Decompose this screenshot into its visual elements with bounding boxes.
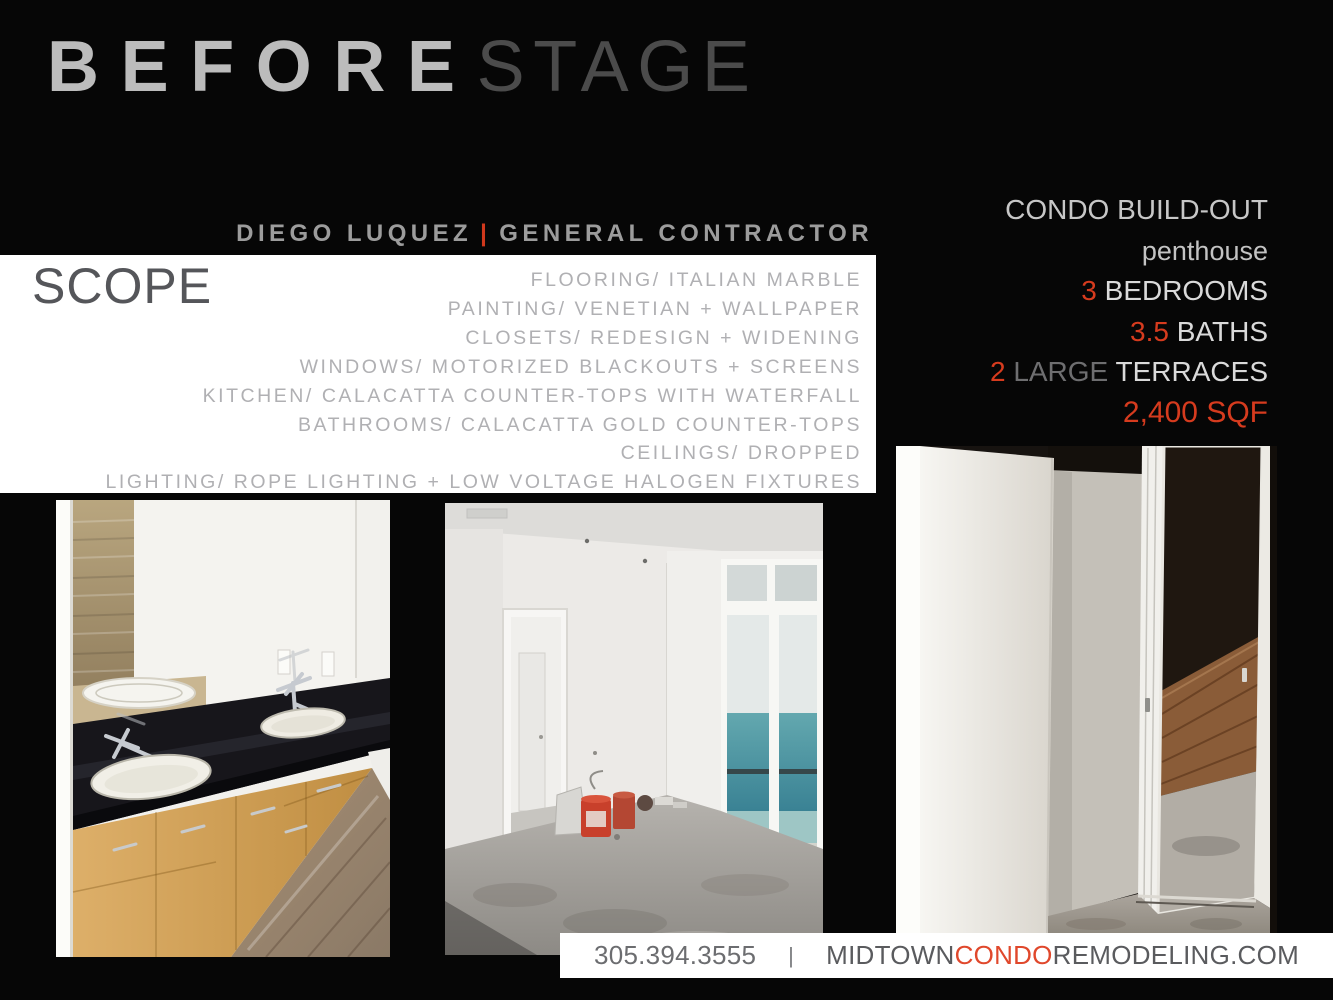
bedrooms-line: 3 BEDROOMS — [990, 271, 1268, 312]
bedrooms-label: BEDROOMS — [1105, 275, 1268, 306]
details-subheading: penthouse — [990, 231, 1268, 272]
bedrooms-value: 3 — [1081, 275, 1097, 306]
byline-separator: | — [472, 220, 499, 247]
area-line: 2,400 SQF — [990, 393, 1268, 434]
website-highlight: CONDO — [955, 940, 1053, 970]
photo-bathroom-vanity — [56, 500, 390, 957]
scope-item: KITCHEN/ CALACATTA COUNTER-TOPS WITH WAT… — [106, 382, 862, 411]
details-heading: CONDO BUILD-OUT — [990, 190, 1268, 231]
website-prefix: MIDTOWN — [826, 940, 954, 970]
footer-separator: | — [788, 943, 794, 969]
title-secondary: STAGE — [477, 27, 759, 107]
baths-value: 3.5 — [1130, 316, 1169, 347]
contractor-name: DIEGO LUQUEZ — [236, 220, 472, 247]
website-suffix: REMODELING.COM — [1053, 940, 1299, 970]
scope-item: PAINTING/ VENETIAN + WALLPAPER — [106, 295, 862, 324]
scope-item: CEILINGS/ DROPPED — [106, 439, 862, 468]
page-title: BEFORESTAGE — [47, 28, 759, 107]
photo-empty-living-room — [445, 503, 823, 955]
baths-label: BATHS — [1177, 316, 1268, 347]
slide: BEFORESTAGE DIEGO LUQUEZ|GENERAL CONTRAC… — [0, 0, 1333, 1000]
terraces-label: TERRACES — [1116, 356, 1268, 387]
scope-item: BATHROOMS/ CALACATTA GOLD COUNTER-TOPS — [106, 411, 862, 440]
footer-bar: 305.394.3555 | MIDTOWNCONDOREMODELING.CO… — [560, 933, 1333, 978]
contractor-byline: DIEGO LUQUEZ|GENERAL CONTRACTOR — [236, 220, 873, 248]
photo-closet-mirror-doors — [896, 446, 1277, 934]
phone-number: 305.394.3555 — [594, 940, 756, 971]
bathroom-vanity-illustration — [56, 500, 390, 957]
title-primary: BEFORE — [47, 27, 477, 107]
terraces-value: 2 — [990, 356, 1006, 387]
condo-details: CONDO BUILD-OUT penthouse 3 BEDROOMS 3.5… — [990, 190, 1268, 433]
scope-item: LIGHTING/ ROPE LIGHTING + LOW VOLTAGE HA… — [106, 468, 862, 497]
scope-item: WINDOWS/ MOTORIZED BLACKOUTS + SCREENS — [106, 353, 862, 382]
baths-line: 3.5 BATHS — [990, 312, 1268, 353]
living-room-illustration — [445, 503, 823, 955]
scope-list: FLOORING/ ITALIAN MARBLE PAINTING/ VENET… — [106, 266, 862, 497]
terraces-qualifier: LARGE — [1013, 356, 1108, 387]
terraces-line: 2 LARGE TERRACES — [990, 352, 1268, 393]
scope-item: CLOSETS/ REDESIGN + WIDENING — [106, 324, 862, 353]
contractor-role: GENERAL CONTRACTOR — [499, 220, 873, 247]
website-url: MIDTOWNCONDOREMODELING.COM — [826, 940, 1299, 971]
scope-panel: SCOPE FLOORING/ ITALIAN MARBLE PAINTING/… — [0, 255, 876, 493]
closet-doors-illustration — [896, 446, 1277, 934]
scope-item: FLOORING/ ITALIAN MARBLE — [106, 266, 862, 295]
